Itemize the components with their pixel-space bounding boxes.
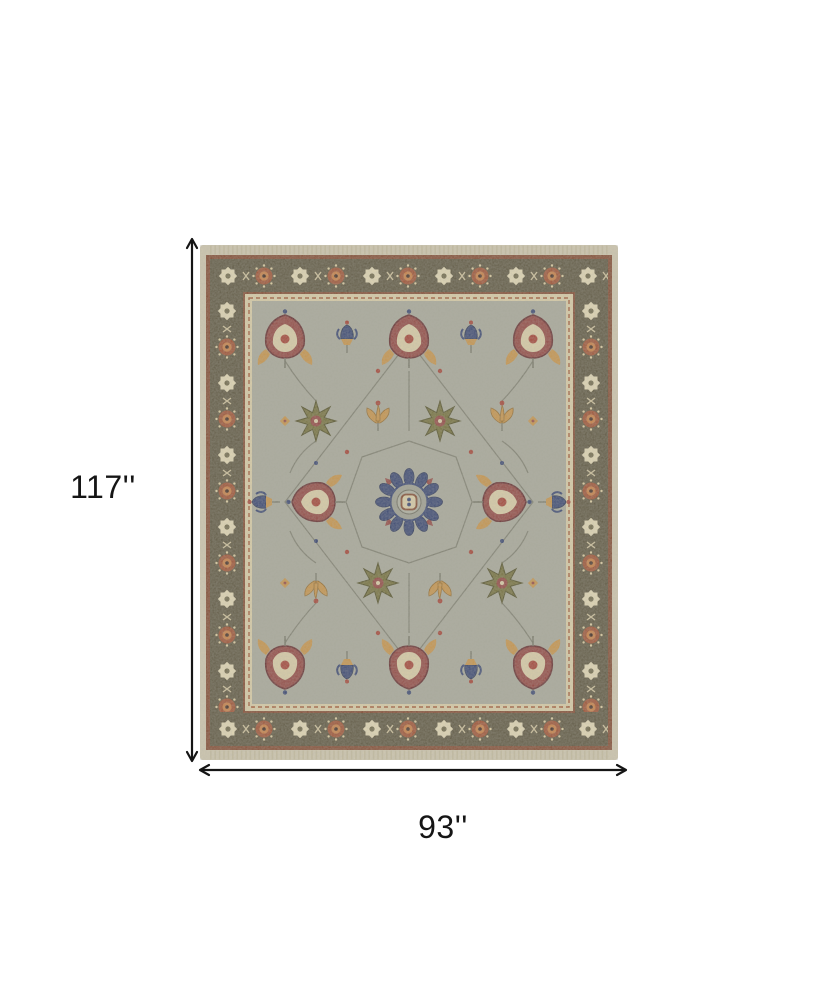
rug-texture-overlay <box>200 245 618 760</box>
height-dimension-label: 117'' <box>33 469 173 506</box>
width-dimension-label: 93'' <box>373 809 513 846</box>
product-dimension-canvas: 117'' 93'' <box>0 0 817 1000</box>
rug-product-image <box>200 245 618 760</box>
